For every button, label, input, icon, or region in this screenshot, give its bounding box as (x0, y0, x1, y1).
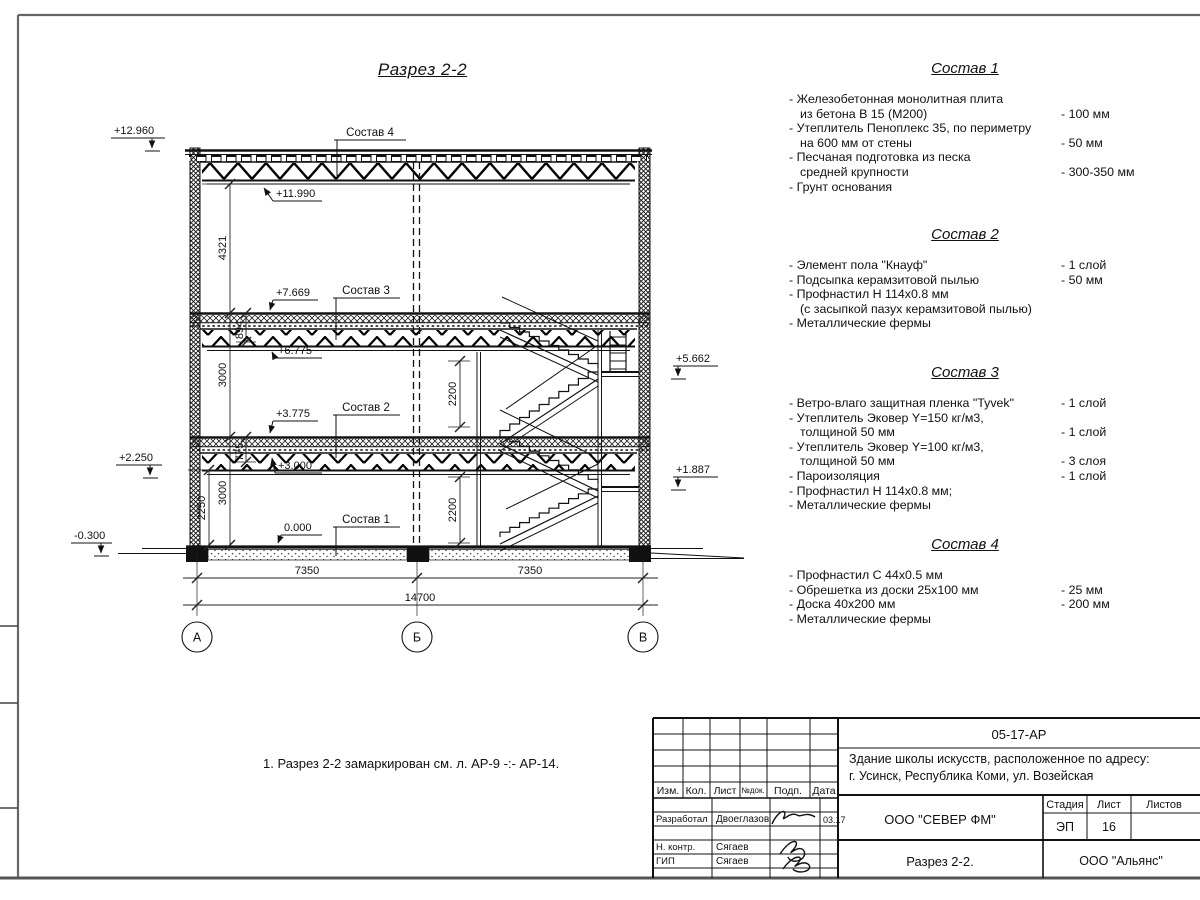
list-item: - Металлические фермы (789, 498, 1141, 513)
callout-sostav2: Состав 2 (342, 402, 390, 414)
ladder (610, 331, 626, 372)
elev-2250: +2.250 (119, 452, 153, 464)
signatures (772, 812, 815, 872)
composition-block-1: Состав 1 - Железобетонная монолитная пли… (789, 60, 1141, 194)
callout-sostav3: Состав 3 (342, 285, 390, 297)
dim-775: 775 (234, 443, 246, 461)
axis-label-v: В (639, 631, 647, 645)
list-item: - Утеплитель Эковер Y=100 кг/м3,толщиной… (789, 440, 1141, 469)
list-item: - Пароизоляция - 1 слой (789, 469, 1141, 484)
list-item: - Металлические фермы (789, 316, 1141, 331)
composition-title-4: Состав 4 (789, 536, 1141, 553)
list-item: - Доска 40х200 мм - 200 мм (789, 597, 1141, 612)
composition-title-2: Состав 2 (789, 226, 1141, 243)
list-item: - Элемент пола "Кнауф" - 1 слой (789, 258, 1141, 273)
composition-block-2: Состав 2 - Элемент пола "Кнауф" - 1 слой… (789, 226, 1141, 331)
project-name-line2: г. Усинск, Республика Коми, ул. Возейска… (849, 769, 1093, 783)
sheet-label: Лист (1097, 799, 1121, 811)
list-item: - Утеплитель Эковер Y=150 кг/м3,толщиной… (789, 411, 1141, 440)
list-item: - Грунт основания (789, 180, 1141, 195)
elev-5662: +5.662 (676, 353, 710, 365)
stage-value: ЭП (1056, 820, 1074, 834)
list-item: - Металлические фермы (789, 612, 1141, 627)
col-kol: Кол. (686, 785, 707, 797)
list-item: - Железобетонная монолитная плитаиз бето… (789, 92, 1141, 121)
signature-developer (772, 812, 815, 824)
list-item: - Подсыпка керамзитовой пылью - 50 мм (789, 273, 1141, 288)
list-item: - Песчаная подготовка из пескасредней кр… (789, 150, 1141, 179)
row-name-ncontr: Сягаев (716, 842, 749, 853)
callout-sostav1: Состав 1 (342, 514, 390, 526)
row-role-gip: ГИП (656, 856, 675, 867)
stage-label: Стадия (1046, 799, 1084, 811)
dim-3000-lower: 3000 (217, 481, 229, 505)
col-data: Дата (812, 785, 835, 797)
dim-2200-upper: 2200 (447, 382, 459, 406)
list-item: - Профнастил С 44х0.5 мм (789, 568, 1141, 583)
dim-14700: 14700 (405, 592, 436, 604)
composition-title-3: Состав 3 (789, 364, 1141, 381)
col-podp: Подп. (774, 785, 802, 797)
dim-894: 894 (234, 321, 246, 339)
axis-label-a: А (193, 631, 202, 645)
drawing-sheet: А Б В 4321 3000 3000 894 775 2250 2200 2… (0, 0, 1200, 900)
ground-slab (118, 547, 744, 562)
col-izm: Изм. (657, 785, 680, 797)
axis-markers: А Б В (182, 622, 658, 652)
dim-4321: 4321 (217, 236, 229, 260)
elev-0000: 0.000 (284, 522, 312, 534)
drawing-title: Разрез 2-2 (340, 60, 505, 80)
callout-sostav4: Состав 4 (346, 127, 394, 139)
row-role-developer: Разработал (656, 814, 708, 825)
composition-block-4: Состав 4 - Профнастил С 44х0.5 мм - Обре… (789, 536, 1141, 626)
column-axis-b (414, 162, 420, 546)
row-role-ncontr: Н. контр. (656, 842, 695, 853)
sheet-number: 16 (1102, 820, 1116, 834)
elev-m0300: -0.300 (74, 530, 105, 542)
list-item: - Профнастил Н 114х0.8 мм; (789, 484, 1141, 499)
project-name-line1: Здание школы искусств, расположенное по … (849, 752, 1150, 766)
row-name-developer: Двоеглазов (716, 814, 769, 825)
elev-11990: +11.990 (276, 188, 315, 200)
list-item: - Утеплитель Пеноплекс 35, по периметрун… (789, 121, 1141, 150)
dim-2250: 2250 (196, 496, 208, 520)
contractor-name: ООО "Альянс" (1079, 854, 1163, 868)
list-item: - Ветро-влаго защитная пленка "Tyvek" - … (789, 396, 1141, 411)
list-item: - Профнастил Н 114х0.8 мм(с засыпкой паз… (789, 287, 1141, 316)
sheets-label: Листов (1146, 799, 1182, 811)
elev-3000: +3.000 (278, 460, 312, 472)
composition-block-3: Состав 3 - Ветро-влаго защитная пленка "… (789, 364, 1141, 513)
signature-gip (783, 857, 810, 872)
dim-2200-lower: 2200 (447, 498, 459, 522)
dim-7350-left: 7350 (295, 565, 319, 577)
elev-3775: +3.775 (276, 408, 310, 420)
list-item: - Обрешетка из доски 25х100 мм - 25 мм (789, 583, 1141, 598)
elev-7669: +7.669 (276, 287, 310, 299)
col-ndok: №док. (741, 786, 764, 795)
sheet-note: 1. Разрез 2-2 замаркирован см. л. АР-9 -… (263, 756, 559, 771)
signature-ncontr (780, 842, 805, 862)
row-date-developer: 03.17 (823, 815, 846, 825)
composition-title-1: Состав 1 (789, 60, 1141, 77)
row-name-gip: Сягаев (716, 856, 749, 867)
axis-label-b: Б (413, 631, 421, 645)
elev-1887: +1.887 (676, 464, 710, 476)
sheet-title: Разрез 2-2. (906, 854, 973, 869)
roof-structure (185, 151, 652, 185)
elev-6775: +6.775 (278, 345, 312, 357)
dim-7350-right: 7350 (518, 565, 542, 577)
dim-3000-upper: 3000 (217, 363, 229, 387)
col-list: Лист (714, 785, 737, 797)
doc-number: 05-17-АР (992, 727, 1047, 742)
elev-12960: +12.960 (114, 125, 154, 137)
company-name: ООО "СЕВЕР ФМ" (884, 812, 996, 827)
